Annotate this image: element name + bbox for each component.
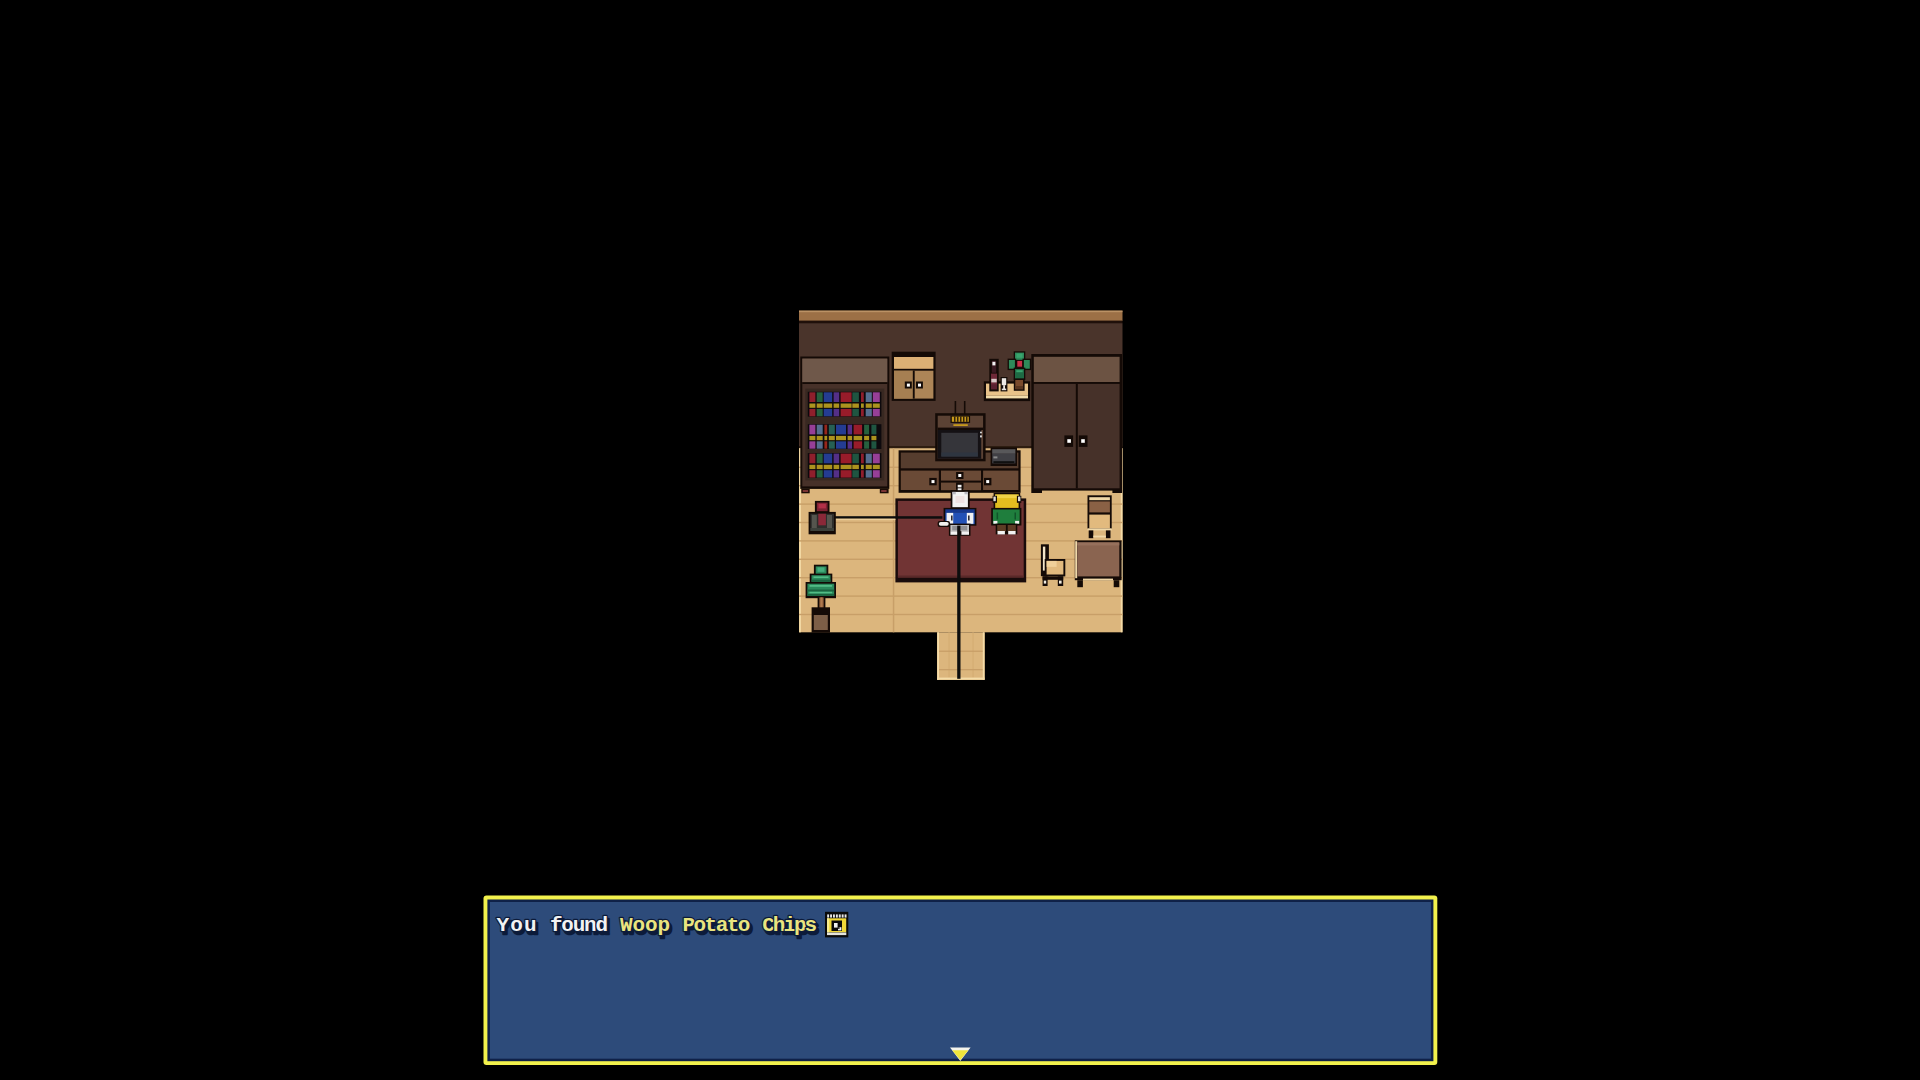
- svg-text:Woop: Woop: [620, 914, 670, 937]
- svg-text:Chips: Chips: [762, 914, 817, 937]
- svg-text:found: found: [550, 914, 608, 937]
- svg-text:You: You: [497, 914, 537, 937]
- svg-text:Potato: Potato: [682, 914, 750, 937]
